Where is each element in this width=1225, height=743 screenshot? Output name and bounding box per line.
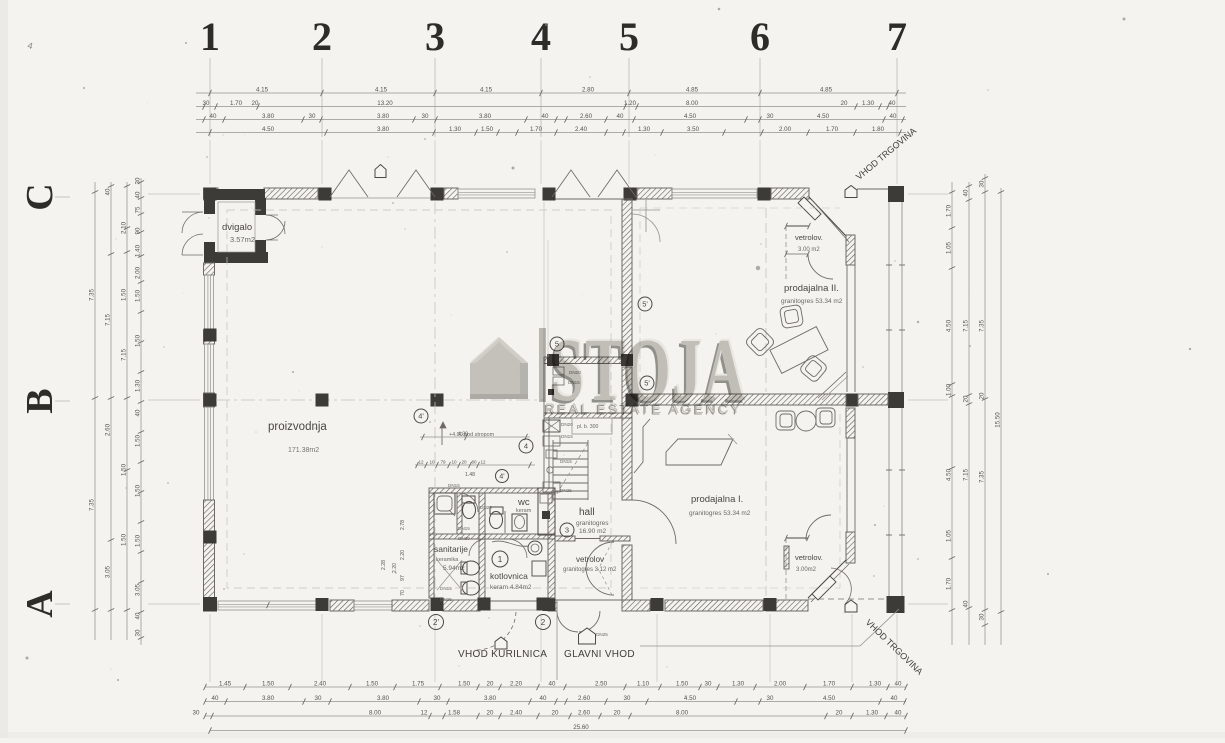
- svg-text:1.50: 1.50: [135, 334, 142, 347]
- svg-text:4: 4: [531, 14, 551, 59]
- svg-text:20: 20: [461, 460, 467, 465]
- svg-text:1.20: 1.20: [624, 100, 637, 107]
- svg-text:15.50: 15.50: [995, 412, 1002, 428]
- svg-text:79: 79: [440, 460, 446, 465]
- svg-text:30: 30: [135, 177, 142, 184]
- svg-text:2.60: 2.60: [578, 710, 591, 717]
- svg-text:vetrolov.: vetrolov.: [795, 233, 823, 242]
- svg-text:6: 6: [750, 14, 770, 59]
- svg-text:DN15: DN15: [560, 459, 572, 464]
- svg-text:75: 75: [135, 206, 142, 213]
- svg-text:2.50: 2.50: [595, 681, 608, 688]
- svg-text:keramika: keramika: [436, 557, 459, 563]
- svg-text:4: 4: [524, 442, 528, 451]
- svg-text:80: 80: [471, 460, 477, 465]
- svg-text:20: 20: [836, 710, 843, 717]
- svg-text:4.15: 4.15: [480, 87, 493, 94]
- svg-text:DN25: DN25: [440, 597, 452, 602]
- svg-text:30: 30: [979, 180, 986, 187]
- svg-text:2.80: 2.80: [582, 87, 595, 94]
- svg-text:5: 5: [619, 14, 639, 59]
- svg-text:2: 2: [312, 14, 332, 59]
- svg-text:2.20: 2.20: [400, 550, 406, 560]
- svg-text:3.80: 3.80: [262, 113, 275, 120]
- svg-text:30: 30: [193, 710, 200, 717]
- svg-text:1.50: 1.50: [135, 434, 142, 447]
- svg-text:granitogres 3.12 m2: granitogres 3.12 m2: [563, 567, 617, 573]
- svg-text:20: 20: [252, 100, 259, 107]
- svg-text:40: 40: [617, 113, 624, 120]
- svg-text:1.50: 1.50: [121, 533, 128, 546]
- svg-text:4.50: 4.50: [823, 695, 836, 702]
- svg-text:4.50: 4.50: [817, 113, 830, 120]
- svg-text:DN20: DN20: [561, 422, 573, 427]
- svg-text:5.94m2: 5.94m2: [443, 565, 465, 572]
- svg-text:40: 40: [963, 600, 970, 607]
- svg-text:1.30: 1.30: [135, 379, 142, 392]
- svg-text:2.00: 2.00: [135, 266, 142, 279]
- svg-text:30: 30: [705, 681, 712, 688]
- svg-text:1.30: 1.30: [869, 681, 882, 688]
- svg-text:REAL ESTATE AGENCY: REAL ESTATE AGENCY: [545, 400, 743, 416]
- svg-text:4.50: 4.50: [262, 126, 275, 133]
- svg-text:7.35: 7.35: [979, 470, 986, 483]
- svg-text:2': 2': [433, 618, 439, 627]
- svg-text:keram 4.84m2: keram 4.84m2: [490, 584, 532, 591]
- svg-text:1.50: 1.50: [121, 288, 128, 301]
- svg-text:4.50: 4.50: [946, 319, 953, 332]
- svg-text:90: 90: [135, 227, 142, 234]
- svg-text:1.50: 1.50: [262, 681, 275, 688]
- svg-text:40: 40: [135, 191, 142, 198]
- svg-text:8.00: 8.00: [676, 710, 689, 717]
- svg-text:2.40: 2.40: [575, 126, 588, 133]
- svg-text:B: B: [19, 388, 61, 413]
- svg-text:30: 30: [422, 113, 429, 120]
- svg-text:keram: keram: [516, 508, 532, 514]
- svg-text:2.28: 2.28: [381, 560, 387, 570]
- svg-text:4.50: 4.50: [946, 468, 953, 481]
- svg-text:7.15: 7.15: [963, 319, 970, 332]
- svg-text:GLAVNI VHOD: GLAVNI VHOD: [564, 649, 635, 660]
- svg-text:2.60: 2.60: [578, 695, 591, 702]
- svg-text:1.30: 1.30: [862, 100, 875, 107]
- svg-text:DN15: DN15: [440, 586, 452, 591]
- svg-text:pl. b. 300: pl. b. 300: [577, 424, 598, 430]
- svg-text:2.20: 2.20: [392, 563, 398, 573]
- svg-text:40: 40: [549, 681, 556, 688]
- svg-text:1.50: 1.50: [481, 126, 494, 133]
- svg-text:171.38m2: 171.38m2: [288, 447, 319, 454]
- svg-text:1.45: 1.45: [219, 681, 232, 688]
- svg-text:1.50: 1.50: [121, 463, 128, 476]
- svg-text:7.15: 7.15: [121, 348, 128, 361]
- svg-text:1.50: 1.50: [458, 681, 471, 688]
- svg-text:1.30: 1.30: [732, 681, 745, 688]
- svg-text:granitogres 53.34 m2: granitogres 53.34 m2: [689, 510, 751, 517]
- svg-text:40: 40: [890, 113, 897, 120]
- svg-text:1.50: 1.50: [135, 289, 142, 302]
- svg-text:2.10: 2.10: [121, 221, 128, 234]
- svg-text:3.80: 3.80: [377, 113, 390, 120]
- svg-text:30: 30: [315, 695, 322, 702]
- svg-text:1.70: 1.70: [823, 681, 836, 688]
- svg-text:4': 4': [499, 474, 504, 481]
- svg-text:30: 30: [767, 113, 774, 120]
- svg-text:30: 30: [624, 695, 631, 702]
- svg-text:1.70: 1.70: [530, 126, 543, 133]
- svg-text:3.00m2: 3.00m2: [796, 567, 817, 573]
- svg-text:40: 40: [542, 113, 549, 120]
- svg-text:1.75: 1.75: [412, 681, 425, 688]
- svg-text:10: 10: [429, 460, 435, 465]
- svg-text:DN20: DN20: [458, 536, 470, 541]
- svg-text:4.85: 4.85: [686, 87, 699, 94]
- svg-text:1.50: 1.50: [366, 681, 379, 688]
- svg-text:1.80: 1.80: [872, 126, 885, 133]
- svg-text:vetrolov: vetrolov: [576, 555, 604, 564]
- svg-text:30: 30: [434, 695, 441, 702]
- svg-text:20: 20: [841, 100, 848, 107]
- svg-text:2.78: 2.78: [400, 520, 406, 530]
- svg-text:20: 20: [979, 392, 986, 399]
- svg-text:1: 1: [498, 554, 503, 564]
- svg-text:2.60: 2.60: [105, 423, 112, 436]
- svg-text:A: A: [19, 590, 61, 618]
- svg-text:16.90 m2: 16.90 m2: [579, 528, 606, 535]
- svg-text:4.85: 4.85: [820, 87, 833, 94]
- svg-text:4.50: 4.50: [684, 113, 697, 120]
- svg-text:40: 40: [135, 409, 142, 416]
- svg-text:DN15: DN15: [448, 483, 460, 488]
- svg-text:7.15: 7.15: [963, 468, 970, 481]
- svg-text:1.30: 1.30: [866, 710, 879, 717]
- svg-text:2.00: 2.00: [774, 681, 787, 688]
- svg-text:20: 20: [487, 710, 494, 717]
- svg-text:7.15: 7.15: [105, 313, 112, 326]
- svg-text:3.80: 3.80: [377, 126, 390, 133]
- svg-text:3.57m2: 3.57m2: [230, 235, 255, 244]
- svg-text:97: 97: [400, 575, 406, 581]
- svg-text:hall: hall: [579, 507, 595, 518]
- svg-text:DN15: DN15: [458, 526, 470, 531]
- svg-text:40: 40: [895, 681, 902, 688]
- svg-text:1.05: 1.05: [946, 529, 953, 542]
- svg-text:1.10: 1.10: [637, 681, 650, 688]
- svg-text:2: 2: [541, 618, 546, 627]
- svg-text:2.40: 2.40: [314, 681, 327, 688]
- svg-text:1.50: 1.50: [135, 534, 142, 547]
- svg-text:1.70: 1.70: [946, 204, 953, 217]
- svg-text:prodajalna I.: prodajalna I.: [691, 494, 743, 505]
- svg-text:20: 20: [963, 395, 970, 402]
- svg-text:3.05: 3.05: [135, 583, 142, 596]
- svg-text:30: 30: [135, 629, 142, 636]
- svg-text:12: 12: [480, 460, 486, 465]
- svg-text:4.30: 4.30: [458, 432, 468, 438]
- svg-text:7.35: 7.35: [979, 319, 986, 332]
- svg-text:20: 20: [552, 710, 559, 717]
- svg-text:granitogres: granitogres: [576, 520, 609, 527]
- svg-text:1.30: 1.30: [638, 126, 651, 133]
- svg-text:1.00: 1.00: [946, 383, 953, 396]
- svg-text:2.00: 2.00: [779, 126, 792, 133]
- svg-text:40: 40: [540, 695, 547, 702]
- svg-text:30: 30: [767, 695, 774, 702]
- svg-text:VHOD KURILNICA: VHOD KURILNICA: [458, 649, 547, 660]
- svg-text:12: 12: [421, 710, 428, 717]
- svg-text:20: 20: [614, 710, 621, 717]
- svg-text:4': 4': [418, 412, 424, 421]
- svg-text:13.20: 13.20: [377, 100, 393, 107]
- svg-text:30: 30: [979, 613, 986, 620]
- svg-text:1.70: 1.70: [826, 126, 839, 133]
- svg-text:30: 30: [203, 100, 210, 107]
- svg-text:3.50: 3.50: [687, 126, 700, 133]
- svg-text:3: 3: [425, 14, 445, 59]
- svg-text:7.35: 7.35: [89, 288, 96, 301]
- svg-text:C: C: [19, 183, 61, 210]
- svg-text:20: 20: [487, 681, 494, 688]
- svg-text:kotlovnica: kotlovnica: [490, 571, 528, 581]
- svg-text:4.15: 4.15: [375, 87, 388, 94]
- svg-text:3: 3: [565, 526, 569, 535]
- svg-text:3.80: 3.80: [262, 695, 275, 702]
- svg-text:1.48: 1.48: [465, 472, 475, 478]
- svg-text:40: 40: [210, 113, 217, 120]
- svg-text:8.00: 8.00: [369, 710, 382, 717]
- svg-text:40: 40: [891, 695, 898, 702]
- svg-text:3.80: 3.80: [377, 695, 390, 702]
- svg-text:prodajalna II.: prodajalna II.: [784, 283, 839, 294]
- svg-text:2.40: 2.40: [510, 710, 523, 717]
- svg-text:40: 40: [963, 189, 970, 196]
- svg-text:40: 40: [895, 710, 902, 717]
- svg-text:5': 5': [642, 300, 648, 309]
- svg-text:1: 1: [200, 14, 220, 59]
- svg-text:30: 30: [309, 113, 316, 120]
- svg-text:8.00: 8.00: [686, 100, 699, 107]
- svg-text:1.40: 1.40: [135, 244, 142, 257]
- svg-text:40: 40: [889, 100, 896, 107]
- svg-text:2.20: 2.20: [510, 681, 523, 688]
- svg-text:1.50: 1.50: [676, 681, 689, 688]
- svg-text:10: 10: [451, 460, 457, 465]
- svg-text:25.60: 25.60: [573, 724, 589, 731]
- svg-text:proizvodnja: proizvodnja: [268, 421, 327, 433]
- svg-text:70: 70: [400, 590, 406, 596]
- svg-text:3.05: 3.05: [105, 565, 112, 578]
- svg-text:DN15: DN15: [561, 434, 573, 439]
- svg-text:40: 40: [212, 695, 219, 702]
- svg-text:vetrolov.: vetrolov.: [795, 553, 823, 562]
- svg-text:3.00 m2: 3.00 m2: [798, 247, 820, 253]
- svg-text:4.15: 4.15: [256, 87, 269, 94]
- svg-text:1.70: 1.70: [946, 577, 953, 590]
- svg-text:3.80: 3.80: [484, 695, 497, 702]
- svg-text:DN25: DN25: [560, 488, 572, 493]
- svg-text:40: 40: [135, 612, 142, 619]
- svg-text:1.58: 1.58: [448, 710, 461, 717]
- svg-text:7: 7: [887, 14, 907, 59]
- svg-text:7.35: 7.35: [89, 498, 96, 511]
- svg-text:dvigalo: dvigalo: [222, 222, 252, 233]
- svg-text:1.50: 1.50: [135, 484, 142, 497]
- svg-text:sanitarije: sanitarije: [434, 544, 468, 554]
- svg-text:1.70: 1.70: [230, 100, 243, 107]
- svg-text:3.80: 3.80: [479, 113, 492, 120]
- svg-text:12: 12: [418, 460, 424, 465]
- svg-text:wc: wc: [517, 497, 530, 508]
- svg-text:40: 40: [105, 188, 112, 195]
- svg-text:2.60: 2.60: [580, 113, 593, 120]
- svg-text:granitogres 53.34 m2: granitogres 53.34 m2: [781, 298, 843, 305]
- svg-text:1.30: 1.30: [449, 126, 462, 133]
- svg-text:1.05: 1.05: [946, 241, 953, 254]
